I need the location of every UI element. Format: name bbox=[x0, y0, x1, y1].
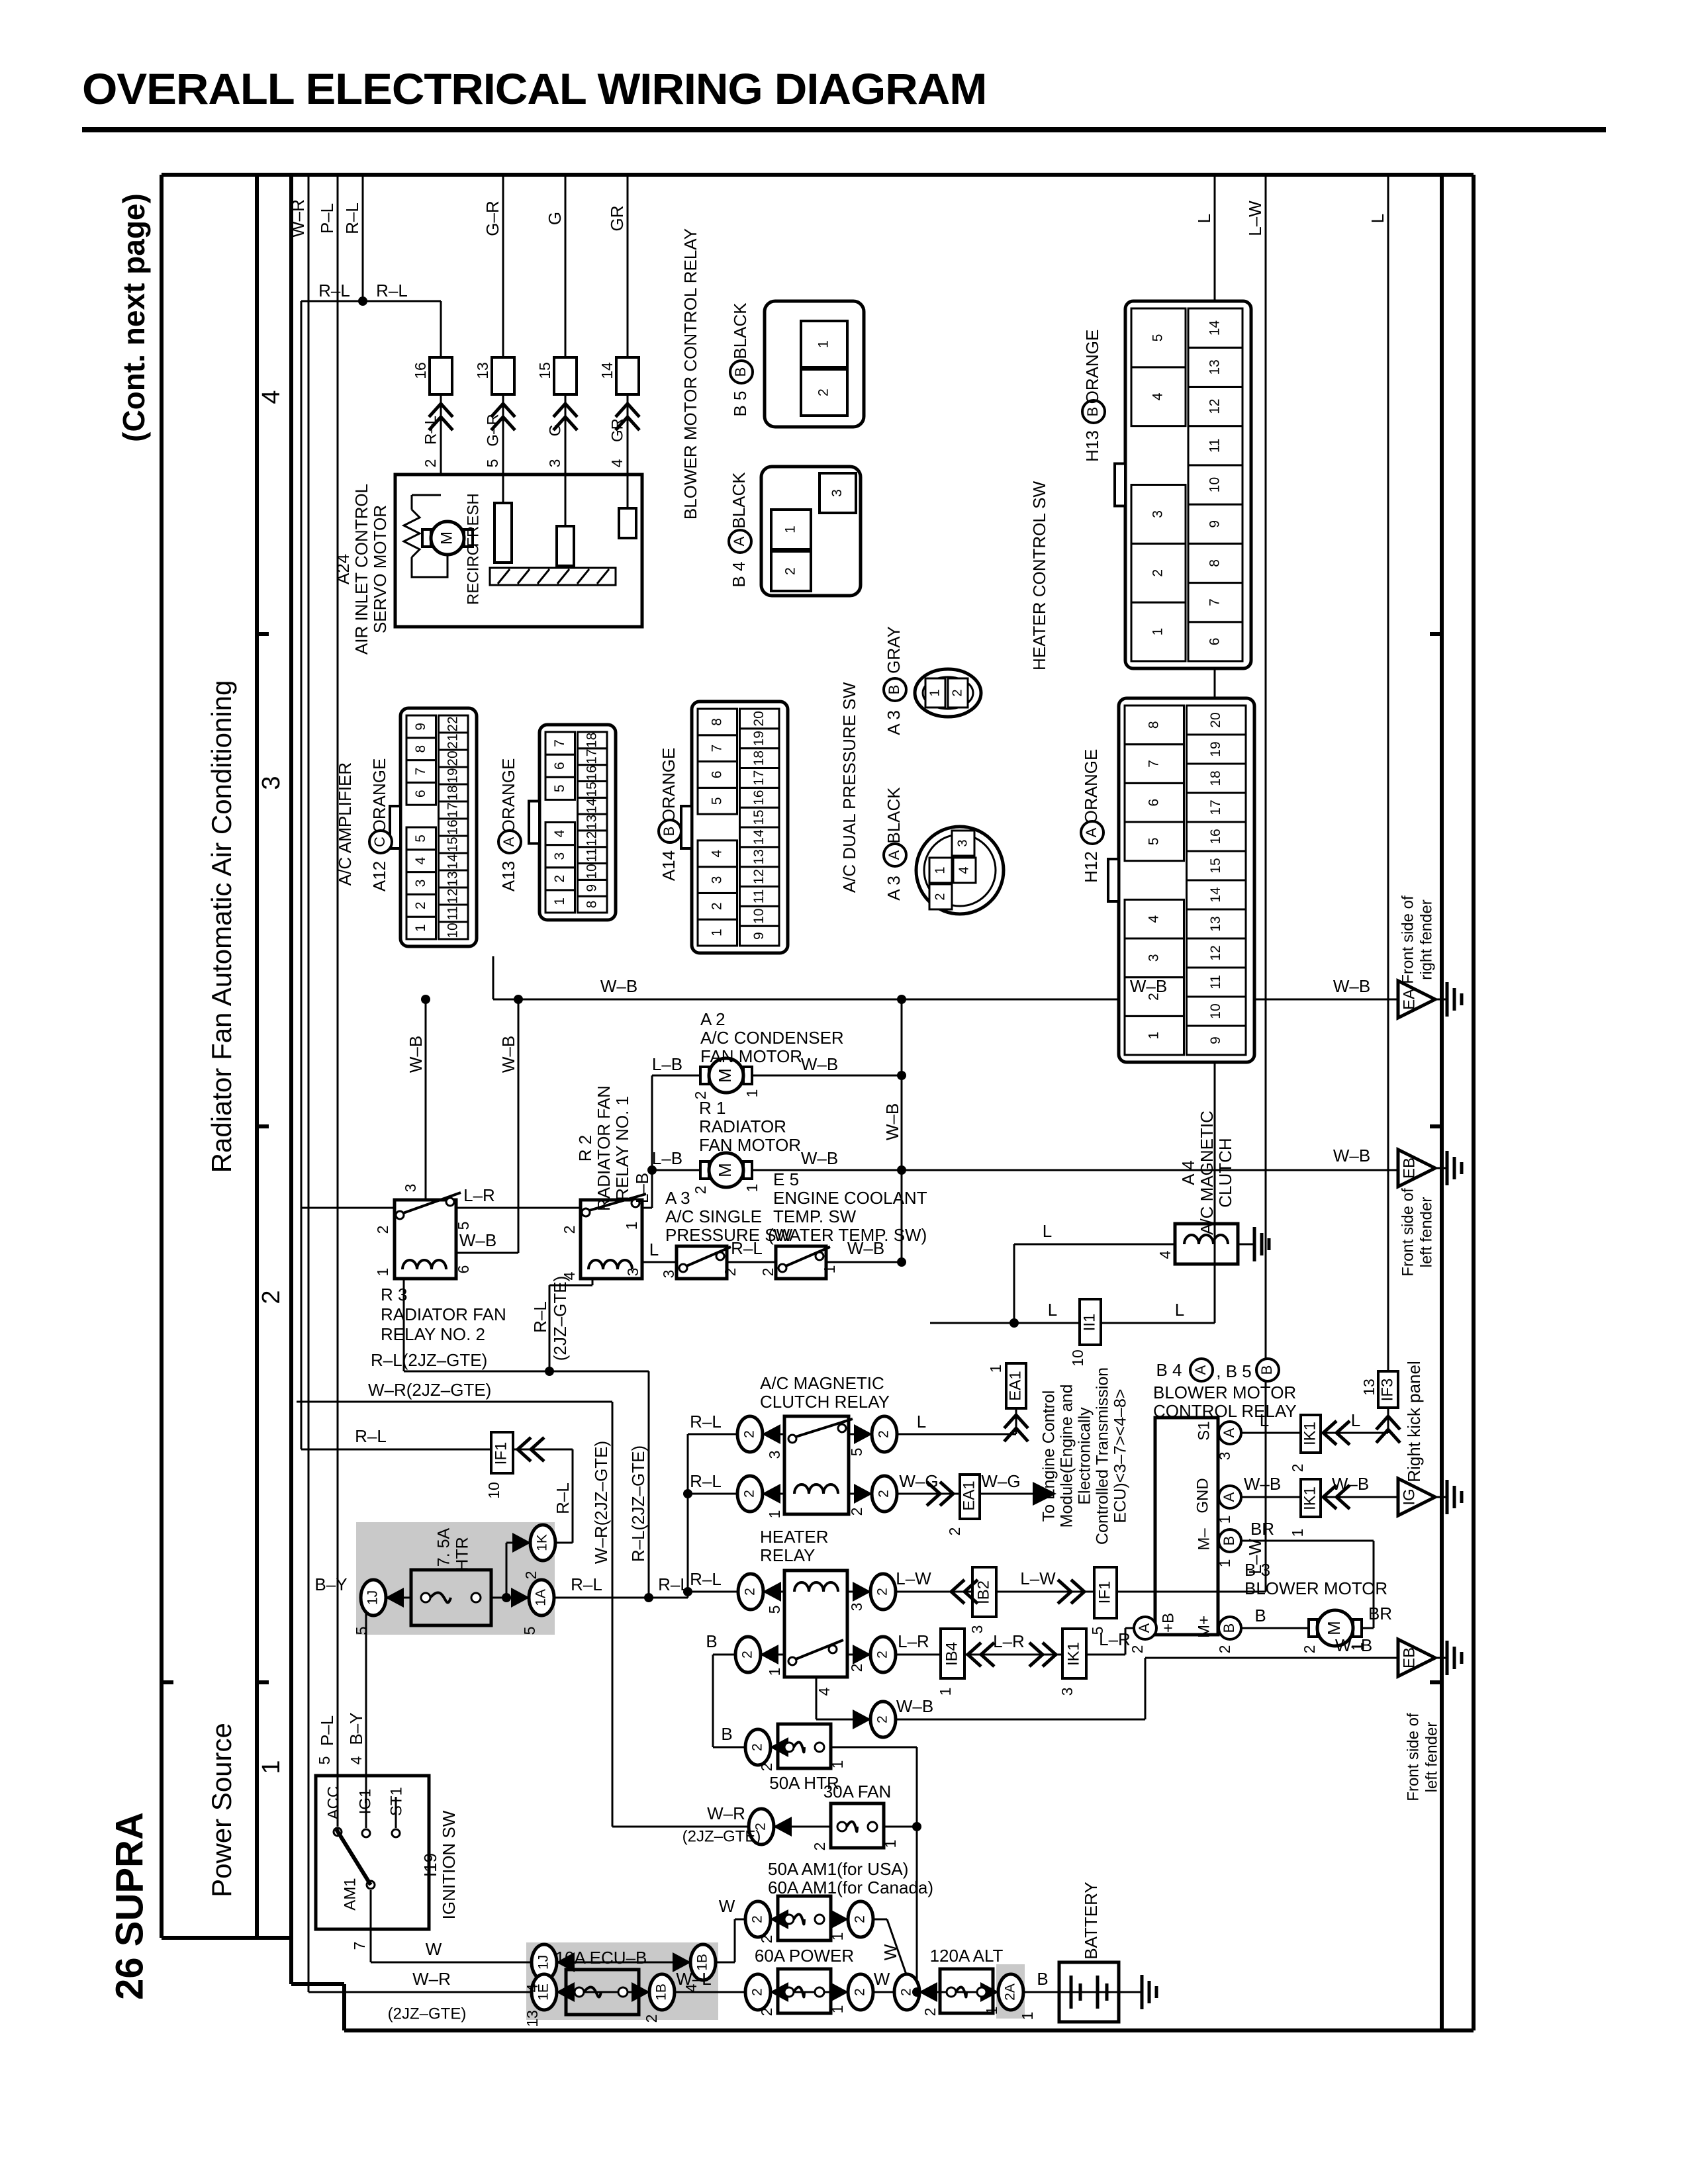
label: (Cont. next page) bbox=[117, 193, 151, 442]
label: R–L bbox=[376, 281, 408, 300]
manual-page: OVERALL ELECTRICAL WIRING DIAGRAM 123456… bbox=[0, 0, 1688, 2184]
wire-arrow bbox=[853, 1645, 871, 1664]
label: G bbox=[546, 424, 564, 437]
connector-id-letter: A bbox=[1136, 1623, 1152, 1633]
label: ORANGE bbox=[659, 748, 679, 823]
label: IGNITION SW bbox=[439, 1810, 459, 1919]
wire-junction bbox=[897, 995, 906, 1004]
label: L bbox=[1043, 1221, 1052, 1241]
label: RADIATOR FAN bbox=[381, 1304, 506, 1324]
connector-pin-number: 9 bbox=[751, 932, 767, 940]
wire-junction bbox=[545, 1367, 554, 1376]
label: M+ bbox=[1195, 1615, 1213, 1638]
connector-pin-number: 7 bbox=[552, 739, 567, 747]
label: W–G bbox=[899, 1471, 938, 1491]
label: G–R bbox=[484, 414, 502, 446]
connector-pin-number: 13 bbox=[751, 849, 767, 864]
label: B bbox=[706, 1631, 717, 1651]
connector-pin-number: 14 bbox=[751, 829, 767, 845]
label: EA1 bbox=[960, 1480, 978, 1510]
label: To Engine Control bbox=[1040, 1390, 1058, 1522]
inline-connector-label: 2 bbox=[750, 1915, 765, 1923]
relay-coil bbox=[1184, 1235, 1228, 1244]
label: (2JZ–GTE) bbox=[550, 1276, 570, 1361]
label: IG bbox=[1400, 1488, 1418, 1505]
connector-id-letter: B bbox=[1258, 1365, 1275, 1375]
connector-pin-number: 3 bbox=[1146, 954, 1161, 962]
inline-connector-label: 1J bbox=[536, 1955, 551, 1970]
label: 2 bbox=[692, 1091, 709, 1100]
inline-connector-label: 2 bbox=[899, 1988, 914, 1996]
connector-pin-number: 20 bbox=[445, 751, 460, 766]
label: IB2 bbox=[974, 1580, 992, 1604]
connector-pin-number: 2 bbox=[552, 875, 567, 883]
component-box bbox=[395, 475, 642, 627]
connector-pin-number: 3 bbox=[829, 489, 845, 497]
label: FAN MOTOR bbox=[699, 1135, 801, 1155]
connector-pin-number: 5 bbox=[709, 797, 724, 805]
label: E 5 bbox=[773, 1169, 799, 1189]
label: A/C MAGNETIC bbox=[1197, 1111, 1217, 1235]
label: R–L bbox=[690, 1412, 722, 1432]
relay-coil bbox=[794, 1582, 838, 1592]
inline-connector-label: 1A bbox=[534, 1589, 549, 1606]
wire-arrow bbox=[830, 1909, 849, 1929]
label: L–R bbox=[463, 1185, 495, 1205]
connector-pin-number: 1 bbox=[933, 866, 947, 874]
connector-pin-number: 3 bbox=[552, 852, 567, 860]
wire-junction bbox=[502, 1593, 511, 1602]
contact bbox=[788, 1657, 796, 1665]
hatch bbox=[538, 569, 549, 584]
label: 2 bbox=[848, 1664, 865, 1672]
connector-id-letter: A bbox=[1083, 827, 1100, 837]
connector-pin-number: 4 bbox=[957, 866, 971, 874]
connector-pin-number: 10 bbox=[751, 909, 767, 924]
label: IF1 bbox=[492, 1442, 510, 1465]
label: Radiator Fan Automatic Air Conditioning bbox=[206, 680, 237, 1173]
connector-latch bbox=[681, 806, 692, 848]
label: CLUTCH RELAY bbox=[760, 1392, 890, 1412]
wire-arrow bbox=[760, 1645, 778, 1664]
connector-pin-number: 12 bbox=[445, 888, 460, 903]
label: BLACK bbox=[730, 302, 750, 359]
label: W–B bbox=[459, 1230, 496, 1250]
label: 1 bbox=[987, 1365, 1004, 1373]
label: A14 bbox=[659, 850, 679, 881]
wire-junction bbox=[897, 1257, 906, 1267]
connector-pin-number: 19 bbox=[1208, 741, 1223, 756]
label: 2 bbox=[692, 1186, 709, 1195]
label: 4 bbox=[1156, 1250, 1174, 1259]
connector-latch bbox=[1108, 859, 1119, 901]
fuse-element bbox=[794, 1742, 804, 1752]
component-box bbox=[1155, 1418, 1218, 1635]
label: 1 bbox=[821, 1265, 838, 1274]
wire-arrow bbox=[763, 1582, 781, 1602]
label: GND bbox=[1194, 1478, 1211, 1513]
servo-slider bbox=[494, 503, 512, 563]
label: 5 bbox=[521, 1627, 538, 1635]
label: 3 bbox=[968, 1625, 986, 1634]
label: W–B bbox=[1335, 1635, 1372, 1655]
connector-id-letter: A bbox=[886, 850, 902, 860]
component-box bbox=[554, 357, 577, 394]
label: 2 bbox=[722, 1268, 739, 1277]
label: 2 bbox=[758, 1763, 775, 1772]
label: RELAY NO. 2 bbox=[381, 1324, 485, 1344]
connector-pin-number: 12 bbox=[584, 831, 599, 846]
label: H12 bbox=[1081, 851, 1101, 883]
label: 3 bbox=[546, 459, 563, 468]
connector-id-letter: B bbox=[1221, 1623, 1237, 1633]
label: 7 bbox=[351, 1942, 368, 1950]
label: IK1 bbox=[1301, 1422, 1319, 1445]
connector-pin-number: 12 bbox=[1208, 945, 1223, 960]
label: W–L bbox=[676, 1969, 711, 1989]
label: ORANGE bbox=[498, 758, 518, 833]
label: 1 bbox=[829, 2005, 846, 2014]
label: B–Y bbox=[346, 1712, 366, 1745]
connector-pin-number: 9 bbox=[1208, 1036, 1223, 1044]
connector-pin-number: 5 bbox=[552, 784, 567, 792]
fuse-end bbox=[815, 1987, 824, 1997]
component-box bbox=[492, 357, 514, 394]
inline-connector-label: 2 bbox=[853, 1915, 868, 1923]
label: 1 bbox=[882, 1840, 899, 1848]
connector-latch bbox=[529, 801, 539, 844]
label: W–B bbox=[896, 1696, 933, 1716]
wire-arrow bbox=[854, 1424, 872, 1444]
label: GR bbox=[608, 418, 626, 442]
label: P–L bbox=[317, 203, 337, 234]
label: 2 bbox=[811, 1843, 828, 1851]
connector-pin-number: 19 bbox=[751, 731, 767, 746]
hatch bbox=[557, 569, 569, 584]
hatch bbox=[498, 569, 510, 584]
label: B bbox=[1037, 1969, 1048, 1989]
servo-slider bbox=[557, 526, 574, 566]
label: 2 bbox=[643, 2015, 660, 2023]
label: 1 bbox=[258, 1760, 285, 1774]
wire-junction bbox=[421, 995, 430, 1004]
label: L–B bbox=[652, 1148, 682, 1168]
inline-connector-label: 2 bbox=[750, 1743, 765, 1751]
label: IF3 bbox=[1378, 1379, 1396, 1402]
label: A 2 bbox=[700, 1009, 726, 1029]
label: R–L(2JZ–GTE) bbox=[371, 1350, 487, 1370]
label: 10A ECU–B bbox=[555, 1948, 647, 1968]
connector-pin-number: 16 bbox=[751, 790, 767, 805]
label: 16 bbox=[412, 362, 429, 379]
label: 1 bbox=[1216, 1516, 1233, 1524]
label: 26 SUPRA bbox=[108, 1812, 151, 2000]
wire-junction bbox=[644, 1593, 653, 1602]
hatch bbox=[577, 569, 589, 584]
label: R–L bbox=[658, 1574, 690, 1594]
connector-pin-number: 2 bbox=[933, 893, 947, 900]
label: W–B bbox=[801, 1148, 838, 1168]
label: 30A FAN bbox=[823, 1782, 892, 1801]
contact bbox=[392, 1829, 400, 1837]
label: 3 bbox=[766, 1451, 783, 1459]
connector-pin-number: 20 bbox=[1208, 712, 1223, 727]
contact bbox=[362, 1829, 370, 1837]
label: 2 bbox=[522, 1571, 539, 1580]
label: RECIRC bbox=[464, 544, 482, 605]
label: A/C MAGNETIC bbox=[760, 1373, 884, 1393]
label: L bbox=[1048, 1300, 1057, 1320]
label: HEATER bbox=[760, 1527, 829, 1547]
connector-pin-number: 1 bbox=[927, 689, 942, 696]
wire bbox=[412, 555, 447, 577]
contact bbox=[788, 1435, 796, 1443]
connector-pin-number: 7 bbox=[1207, 598, 1223, 606]
label: L–R bbox=[1099, 1629, 1131, 1649]
label: B bbox=[721, 1724, 732, 1744]
label: M– bbox=[1195, 1528, 1213, 1551]
label: IK1 bbox=[1301, 1486, 1319, 1510]
label: A13 bbox=[498, 861, 518, 891]
label: 2 bbox=[848, 1508, 865, 1516]
label: 2 bbox=[258, 1290, 285, 1304]
label: ORANGE bbox=[1081, 749, 1101, 824]
connector-pin-number: 14 bbox=[1207, 320, 1223, 336]
connector-pin-number: 16 bbox=[445, 819, 460, 835]
connector-id-letter: A bbox=[500, 837, 517, 846]
label: BLOWER MOTOR bbox=[1153, 1383, 1296, 1402]
wire-arrow bbox=[830, 1982, 849, 2002]
connector-pin-number: 4 bbox=[1150, 392, 1166, 400]
label: Electronically bbox=[1076, 1407, 1094, 1505]
label: FAN MOTOR bbox=[700, 1046, 802, 1066]
wire-junction bbox=[912, 1987, 921, 1997]
label: 2 bbox=[561, 1226, 578, 1234]
label: 5 bbox=[766, 1606, 783, 1614]
wire-junction bbox=[897, 1071, 906, 1080]
label: 2 bbox=[758, 2008, 775, 2017]
connector-id-letter: A bbox=[1192, 1365, 1209, 1375]
label: BATTERY bbox=[1081, 1882, 1101, 1960]
label: IG1 bbox=[356, 1789, 374, 1815]
label: AIR INLET CONTROL bbox=[352, 484, 371, 655]
label: R–L bbox=[422, 416, 440, 445]
connector-pin-number: 15 bbox=[584, 782, 599, 797]
label: A/C AMPLIFIER bbox=[335, 762, 355, 886]
label: L bbox=[917, 1412, 926, 1432]
connector-latch bbox=[1115, 464, 1125, 506]
label: 2 bbox=[1216, 1645, 1233, 1654]
label: W–B bbox=[600, 976, 637, 996]
component-box bbox=[430, 357, 452, 394]
connector-pin-number: 10 bbox=[1208, 1003, 1223, 1019]
connector-pin-number: 8 bbox=[709, 718, 724, 726]
label: L–B bbox=[652, 1054, 682, 1074]
contact bbox=[446, 1198, 454, 1206]
connector-pin-number: 9 bbox=[584, 884, 599, 892]
servo-slider bbox=[619, 508, 636, 538]
label: (2JZ–GTE) bbox=[682, 1827, 761, 1845]
label: 7. 5A bbox=[435, 1527, 453, 1567]
label: 4 bbox=[348, 1756, 365, 1764]
label: 5 bbox=[353, 1627, 370, 1635]
label: L–W bbox=[896, 1569, 931, 1588]
label: P–L bbox=[317, 1715, 337, 1746]
label: L bbox=[1175, 1300, 1184, 1320]
connector-pin-number: 8 bbox=[1207, 559, 1223, 567]
label: L–B bbox=[632, 1173, 652, 1203]
connector-pin-number: 10 bbox=[1207, 477, 1223, 492]
label: R–L bbox=[530, 1301, 550, 1333]
connector-pin-number: 17 bbox=[445, 802, 460, 817]
connector-pin-number: 7 bbox=[1146, 760, 1161, 768]
label: 5 bbox=[316, 1756, 333, 1765]
label: 1 bbox=[623, 1222, 640, 1230]
wire-junction bbox=[358, 296, 367, 306]
label: R–L bbox=[318, 281, 350, 300]
label: 5 bbox=[455, 1222, 472, 1230]
connector-pin-number: 12 bbox=[751, 869, 767, 884]
label: W–R bbox=[412, 1969, 451, 1989]
connector-pin-number: 1 bbox=[1150, 628, 1166, 636]
label: A/C SINGLE bbox=[665, 1206, 762, 1226]
label: L bbox=[1194, 214, 1214, 223]
label: L–W bbox=[1245, 201, 1265, 236]
label: W–R(2JZ–GTE) bbox=[591, 1441, 611, 1564]
connector-pin-number: 14 bbox=[584, 798, 599, 814]
connector-pin-number: 7 bbox=[413, 768, 428, 776]
label: R–L bbox=[571, 1574, 602, 1594]
inline-connector-label: 2 bbox=[875, 1715, 890, 1723]
label: 4 bbox=[258, 390, 285, 404]
connector-pin-number: 2 bbox=[709, 902, 724, 910]
label: GRAY bbox=[884, 626, 904, 674]
label: BR bbox=[1250, 1519, 1274, 1539]
label: A24 bbox=[333, 554, 353, 584]
label: G bbox=[545, 212, 565, 225]
label: A 3 bbox=[665, 1188, 690, 1208]
label: 2 bbox=[422, 459, 439, 468]
wire-arrow bbox=[854, 1484, 872, 1504]
label: H13 bbox=[1082, 430, 1102, 462]
label: W–B bbox=[1130, 976, 1167, 996]
label: Module(Engine and bbox=[1058, 1385, 1076, 1528]
connector-pin-number: 2 bbox=[413, 901, 428, 909]
connector-pin-number: 5 bbox=[1150, 334, 1166, 342]
label: I19 bbox=[420, 1853, 440, 1877]
connector-pin-number: 13 bbox=[445, 871, 460, 886]
label: BR bbox=[1368, 1604, 1392, 1623]
connector-id-letter: A bbox=[1221, 1492, 1237, 1502]
connector-pin-number: 11 bbox=[584, 848, 599, 862]
connector-pin-number: 19 bbox=[445, 768, 460, 783]
label: 2 bbox=[759, 1268, 776, 1277]
label: HTR bbox=[453, 1537, 472, 1570]
connector-pin-number: 3 bbox=[955, 839, 970, 846]
label: 1 bbox=[829, 1760, 846, 1769]
connector-pin-number: 17 bbox=[751, 770, 767, 786]
contact bbox=[679, 1264, 687, 1272]
label: Front side of bbox=[1404, 1713, 1422, 1801]
wire-junction bbox=[912, 1822, 921, 1831]
label: Front side of bbox=[1399, 895, 1417, 984]
connector-pin-number: 14 bbox=[1208, 887, 1223, 903]
label: L bbox=[1351, 1410, 1360, 1430]
label: 1 bbox=[374, 1268, 391, 1277]
label: 1 bbox=[1289, 1529, 1306, 1537]
label: L–R bbox=[898, 1631, 929, 1651]
label: EB bbox=[1400, 1647, 1418, 1668]
label: R–L bbox=[553, 1482, 573, 1514]
connector-id-letter: B bbox=[1084, 407, 1101, 417]
connector-pin-number: 11 bbox=[1207, 438, 1223, 453]
connector-pin-number: 9 bbox=[413, 723, 428, 731]
connector-pin-number: 18 bbox=[584, 733, 599, 748]
label: 13 bbox=[474, 362, 491, 379]
label: 3 bbox=[258, 776, 285, 790]
label: 1 bbox=[937, 1688, 954, 1696]
label: R–L bbox=[731, 1238, 763, 1258]
connector-id-letter: B bbox=[1221, 1536, 1237, 1546]
label: S1 bbox=[1195, 1421, 1213, 1440]
wire-junction bbox=[897, 1165, 906, 1175]
label: IB4 bbox=[943, 1642, 961, 1666]
connector-id-letter: A bbox=[1221, 1428, 1237, 1437]
label: 50A AM1(for USA) bbox=[768, 1859, 908, 1879]
label: Front side of bbox=[1399, 1188, 1417, 1277]
wire-arrow bbox=[919, 1982, 937, 2002]
label: W bbox=[719, 1896, 735, 1916]
label: G–R bbox=[483, 201, 502, 236]
inline-connector-label: 1J bbox=[365, 1590, 381, 1605]
wire-arrow bbox=[762, 1484, 780, 1504]
wire-arrow bbox=[773, 1817, 792, 1837]
label: R–L bbox=[690, 1569, 722, 1589]
label: 3 bbox=[1216, 1452, 1233, 1461]
connector-pin-number: 20 bbox=[751, 711, 767, 726]
label: right fender bbox=[1417, 899, 1435, 979]
connector-pin-number: 13 bbox=[1208, 916, 1223, 931]
fuse-end bbox=[815, 1915, 824, 1924]
connector-pin-number: 5 bbox=[413, 835, 428, 842]
connector-pin-number: 13 bbox=[1207, 359, 1223, 375]
fuse-end bbox=[618, 1987, 628, 1997]
connector-pin-number: 18 bbox=[751, 751, 767, 766]
fuse-end bbox=[784, 1915, 794, 1924]
fuse-end bbox=[947, 1987, 956, 1997]
inline-connector-label: 2 bbox=[743, 1588, 758, 1596]
connector-pin-number: 17 bbox=[1208, 799, 1223, 815]
label: FRESH bbox=[464, 493, 482, 547]
label: EB bbox=[1400, 1158, 1418, 1179]
connector-pin-number: 17 bbox=[584, 749, 599, 764]
label: W–B bbox=[847, 1238, 884, 1258]
fuse-end bbox=[784, 1743, 794, 1752]
connector-pin-number: 11 bbox=[445, 906, 460, 921]
fuse-element bbox=[794, 1914, 804, 1924]
label: 1 bbox=[766, 1510, 783, 1519]
label: R–L bbox=[342, 203, 362, 234]
inline-connector-label: 2 bbox=[876, 1430, 892, 1438]
fuse-end bbox=[784, 1987, 794, 1997]
label: R–L bbox=[690, 1471, 722, 1491]
label: A 4 bbox=[1178, 1160, 1198, 1185]
label: ACC bbox=[324, 1786, 342, 1820]
label: R–L(2JZ–GTE) bbox=[628, 1445, 648, 1562]
connector-pin-number: 18 bbox=[1208, 770, 1223, 786]
connector-pin-number: 6 bbox=[709, 771, 724, 779]
label: B 4 bbox=[729, 561, 749, 587]
